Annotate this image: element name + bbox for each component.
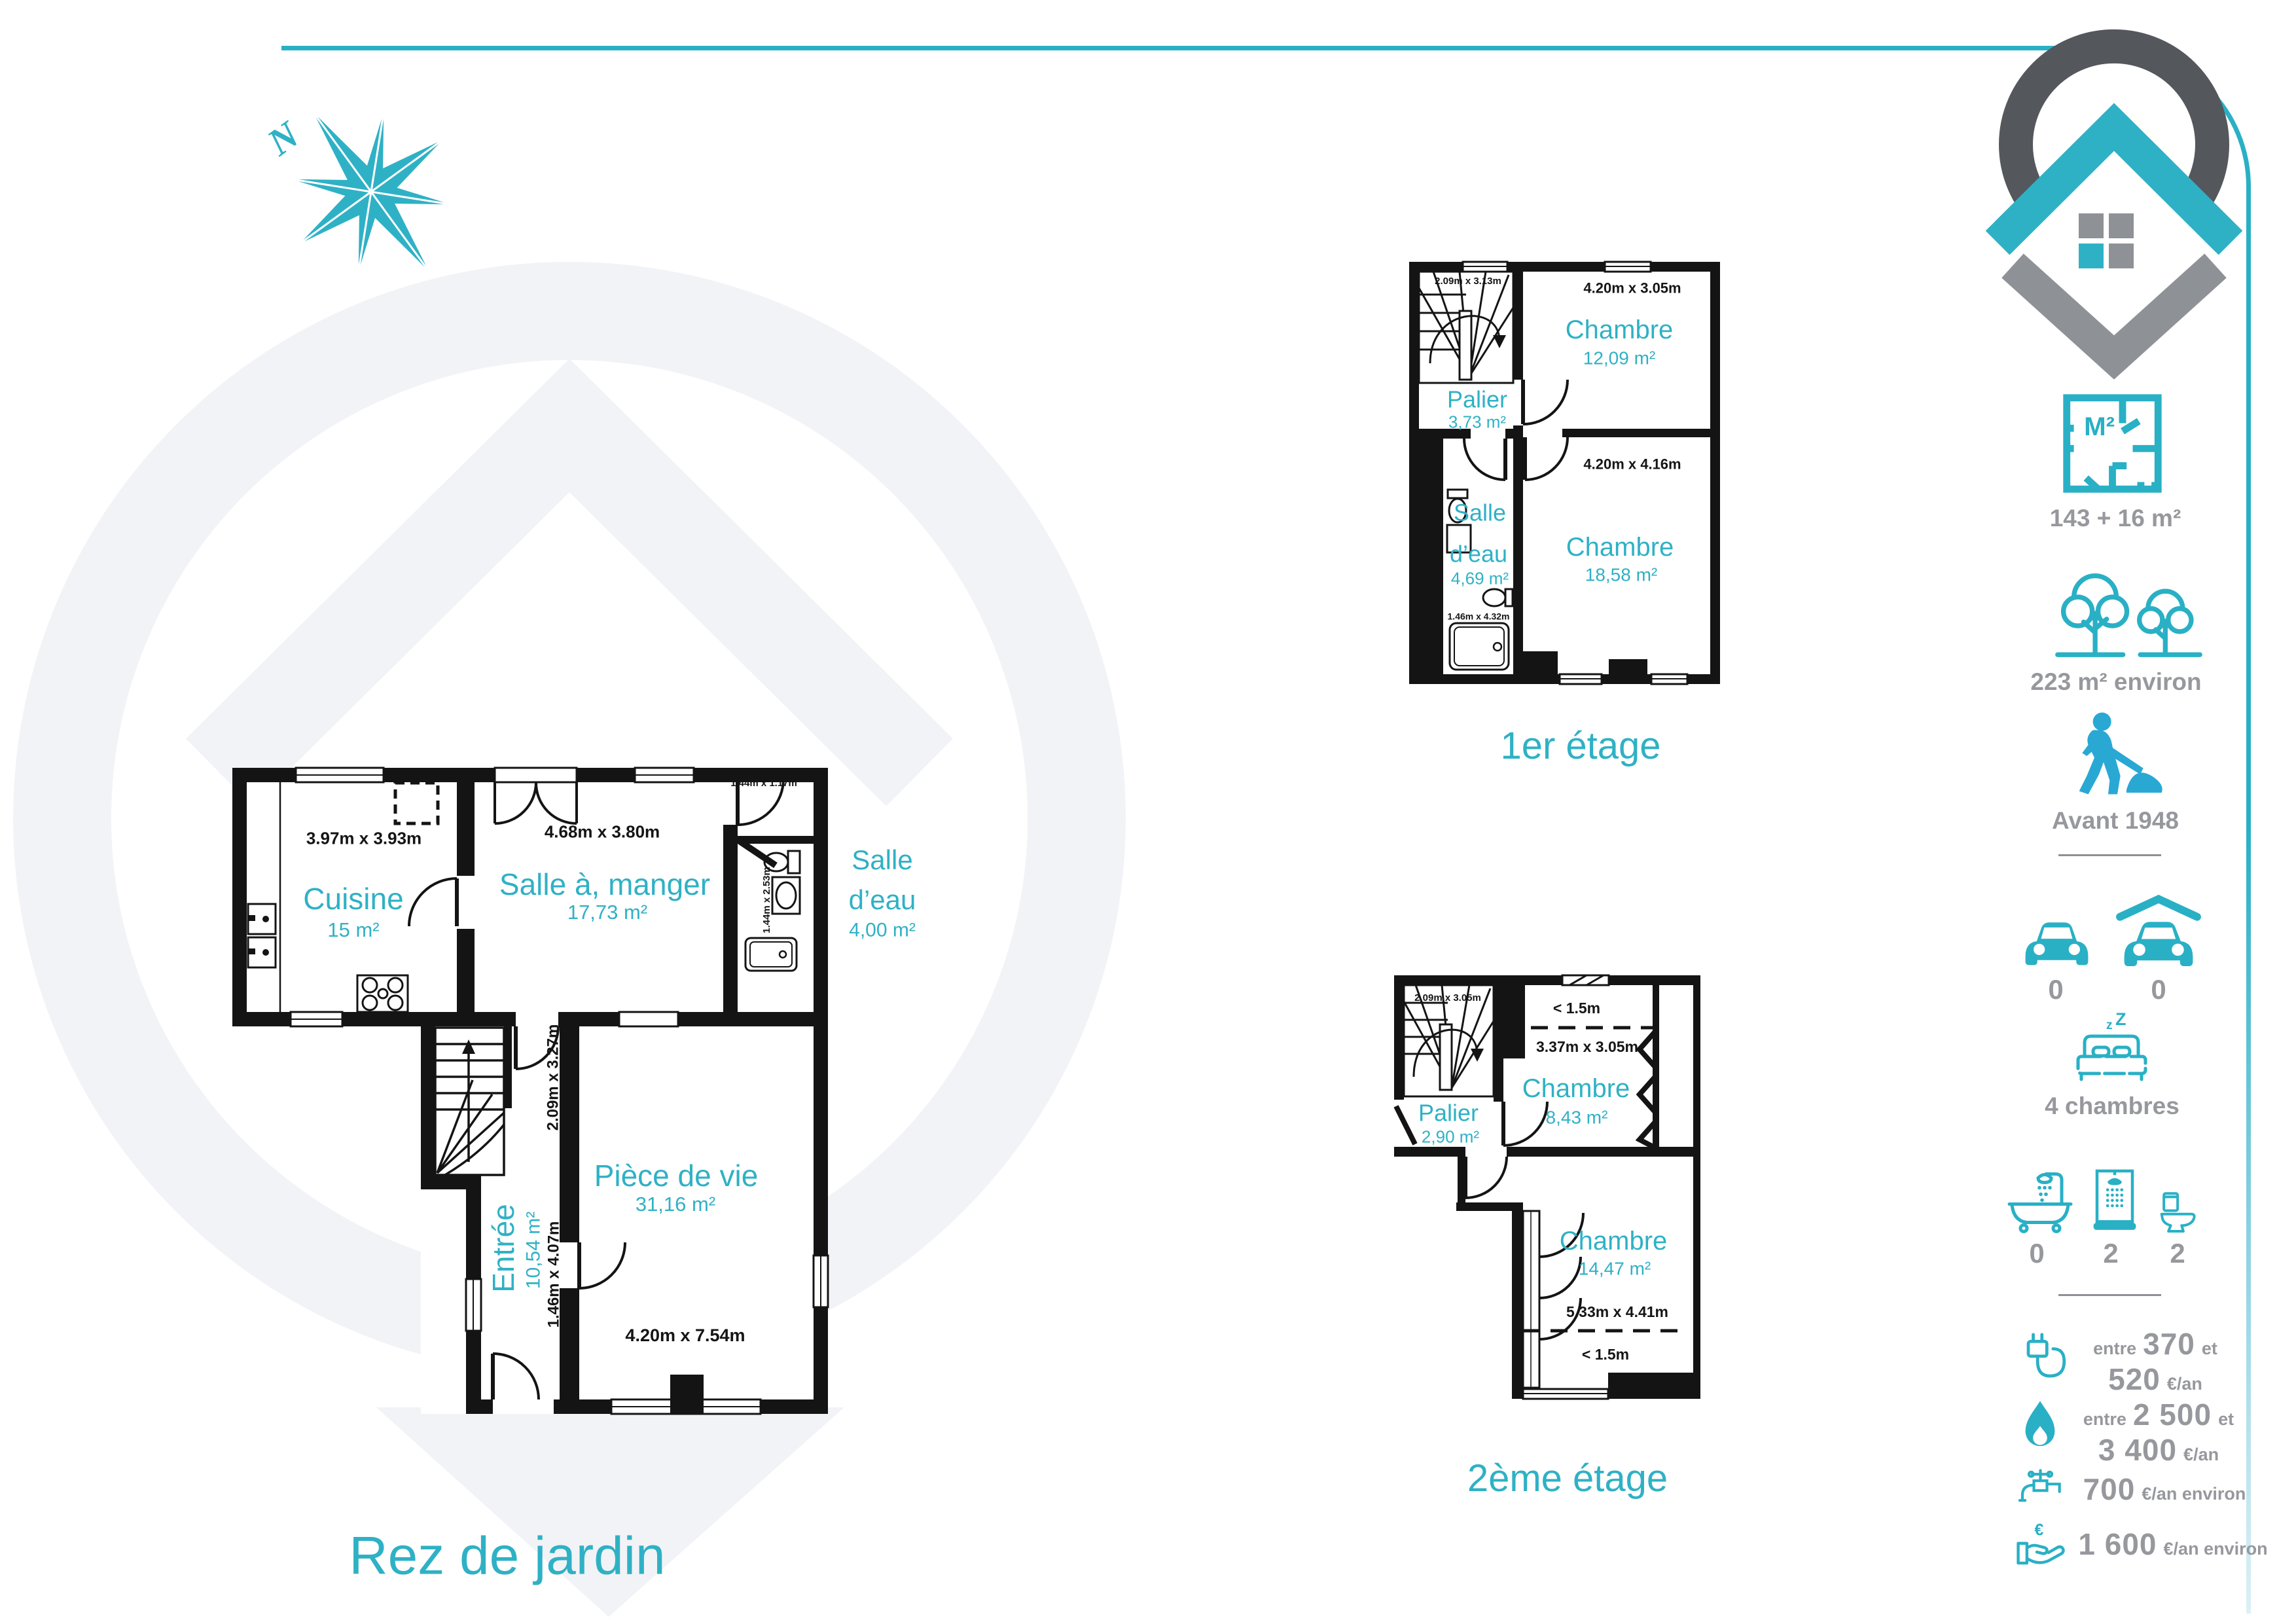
gas-cost-max: 3 400 <box>2098 1432 2177 1468</box>
e2-ch1-height: < 1.5m <box>1553 1001 1600 1017</box>
electricity-cost-and: et <box>2202 1339 2217 1359</box>
bedrooms-value: 4 chambres <box>2045 1094 2179 1119</box>
svg-text:€: € <box>2034 1521 2043 1539</box>
wc-icon <box>2157 1190 2199 1236</box>
e1-sde-area: 4,69 m² <box>1451 569 1509 587</box>
water-cost-value: 700 <box>2083 1471 2136 1507</box>
rdj-cuisine-name: Cuisine <box>303 884 403 915</box>
e1-sde-dims: 1.46m x 4.32m <box>1448 612 1510 622</box>
water-cost: 700 €/an environ <box>2066 1471 2263 1507</box>
electricity-cost: entre 370 et 520 €/an <box>2073 1326 2237 1397</box>
title-1er-etage: 1er étage <box>1500 727 1660 766</box>
e1-ch1-dims: 4.20m x 3.05m <box>1583 281 1681 297</box>
water-cost-unit: €/an environ <box>2142 1484 2246 1504</box>
bathtub-count: 0 <box>2029 1239 2044 1268</box>
surface-value: 143 + 16 m² <box>2050 506 2181 531</box>
wc-count: 2 <box>2170 1239 2185 1268</box>
garage-car-icon <box>2113 895 2204 974</box>
land-trees-icon <box>2052 564 2206 662</box>
rdj-cuisine-dims: 3.97m x 3.93m <box>306 829 422 847</box>
gas-cost-and: et <box>2218 1409 2234 1430</box>
e1-palier-area: 3,73 m² <box>1448 413 1506 431</box>
e2-ch2-dims: 5.33m x 4.41m <box>1566 1305 1668 1320</box>
land-value: 223 m² environ <box>2030 670 2201 695</box>
fees-cost-value: 1 600 <box>2078 1526 2157 1562</box>
parking-car-icon <box>2019 909 2094 974</box>
e1-ch1-area: 12,09 m² <box>1583 348 1656 367</box>
e2-ch1-name: Chambre <box>1522 1075 1630 1103</box>
gas-flame-icon <box>2021 1396 2059 1453</box>
e2-ch1-dims: 3.37m x 3.05m <box>1536 1039 1638 1055</box>
e1-sde-name-1: Salle <box>1454 500 1506 524</box>
compass-rose-icon <box>263 77 479 300</box>
gas-cost: entre 2 500 et 3 400 €/an <box>2073 1397 2244 1468</box>
rdj-sam-area: 17,73 m² <box>567 902 647 923</box>
agency-logo-icon <box>1990 17 2238 370</box>
water-faucet-icon <box>2016 1468 2065 1508</box>
construction-year-value: Avant 1948 <box>2052 808 2179 833</box>
rdj-sde-area: 4,00 m² <box>849 920 916 940</box>
sidebar-divider-1 <box>2058 854 2161 856</box>
rdj-sam-dims: 4.68m x 3.80m <box>545 823 660 840</box>
gas-cost-min: 2 500 <box>2133 1397 2212 1432</box>
surface-m2-icon: M² <box>2062 393 2163 494</box>
e1-ch2-area: 18,58 m² <box>1585 565 1658 584</box>
e2-palier-area: 2,90 m² <box>1422 1128 1479 1146</box>
e2-ch2-name: Chambre <box>1560 1228 1668 1255</box>
fees-hand-euro-icon: € <box>2016 1520 2068 1569</box>
svg-text:Z: Z <box>2115 1009 2126 1029</box>
e1-ch1-name: Chambre <box>1566 317 1674 344</box>
e1-ch2-name: Chambre <box>1566 534 1674 562</box>
rdj-pdv-dims: 4.20m x 7.54m <box>625 1326 745 1344</box>
page-border-top <box>281 46 2251 194</box>
bedrooms-bed-icon: z Z <box>2068 1013 2157 1092</box>
rdj-sde-dims-top: 1.44m x 1.17m <box>730 778 797 789</box>
e1-sde-name-2: d’eau <box>1450 541 1507 566</box>
e2-palier-name: Palier <box>1418 1100 1479 1125</box>
rdj-pdv-name: Pièce de vie <box>594 1161 759 1192</box>
garage-count: 0 <box>2151 975 2166 1004</box>
fees-cost-unit: €/an environ <box>2164 1539 2268 1559</box>
shower-count: 2 <box>2103 1239 2118 1268</box>
shower-icon <box>2091 1164 2138 1236</box>
rdj-sde-dims-side: 1.44m x 2.53m <box>762 867 772 933</box>
svg-text:M²: M² <box>2084 412 2115 441</box>
parking-count: 0 <box>2048 975 2063 1004</box>
rdj-cuisine-area: 15 m² <box>327 920 379 941</box>
e2-ch1-area: 8,43 m² <box>1546 1108 1608 1127</box>
gas-cost-unit: €/an <box>2183 1445 2219 1465</box>
floorplan-page: N <box>0 0 2296 1624</box>
title-rez-de-jardin: Rez de jardin <box>349 1528 665 1583</box>
rdj-entree-stair-dims: 2.09m x 3.27m <box>546 1024 562 1131</box>
rdj-entree-dims: 1.46m x 4.07m <box>547 1221 563 1328</box>
floorplan-e2-drawing <box>1384 969 1708 1404</box>
e1-stair-dims: 2.09m x 3.13m <box>1435 276 1501 287</box>
electricity-plug-icon <box>2017 1333 2073 1388</box>
rdj-sam-name: Salle à, manger <box>499 869 710 901</box>
gas-cost-prefix: entre <box>2083 1409 2126 1430</box>
electricity-cost-max: 520 <box>2108 1362 2161 1397</box>
sidebar-divider-2 <box>2058 1294 2161 1296</box>
construction-year-icon <box>2062 710 2173 802</box>
e1-ch2-dims: 4.20m x 4.16m <box>1583 458 1681 473</box>
e1-palier-name: Palier <box>1447 387 1507 411</box>
floorplan-rdj-drawing <box>223 759 956 1420</box>
rdj-pdv-area: 31,16 m² <box>636 1194 715 1215</box>
e2-stair-dims: 2.09m x 3.05m <box>1414 993 1481 1003</box>
electricity-cost-min: 370 <box>2143 1326 2195 1362</box>
fees-cost: 1 600 €/an environ <box>2068 1526 2278 1562</box>
bathtub-icon <box>2004 1166 2076 1235</box>
e2-ch2-area: 14,47 m² <box>1579 1259 1651 1278</box>
rdj-entree-name: Entrée <box>488 1204 520 1293</box>
title-2eme-etage: 2ème étage <box>1467 1459 1668 1498</box>
rdj-entree-area: 10,54 m² <box>523 1212 543 1289</box>
e2-ch2-height: < 1.5m <box>1582 1347 1629 1363</box>
rdj-sde-name-1: Salle <box>852 846 912 875</box>
rdj-sde-name-2: d’eau <box>849 886 916 914</box>
svg-text:z: z <box>2106 1019 2113 1032</box>
electricity-cost-prefix: entre <box>2093 1339 2136 1359</box>
page-border-right <box>2246 183 2251 1614</box>
electricity-cost-unit: €/an <box>2167 1374 2202 1394</box>
